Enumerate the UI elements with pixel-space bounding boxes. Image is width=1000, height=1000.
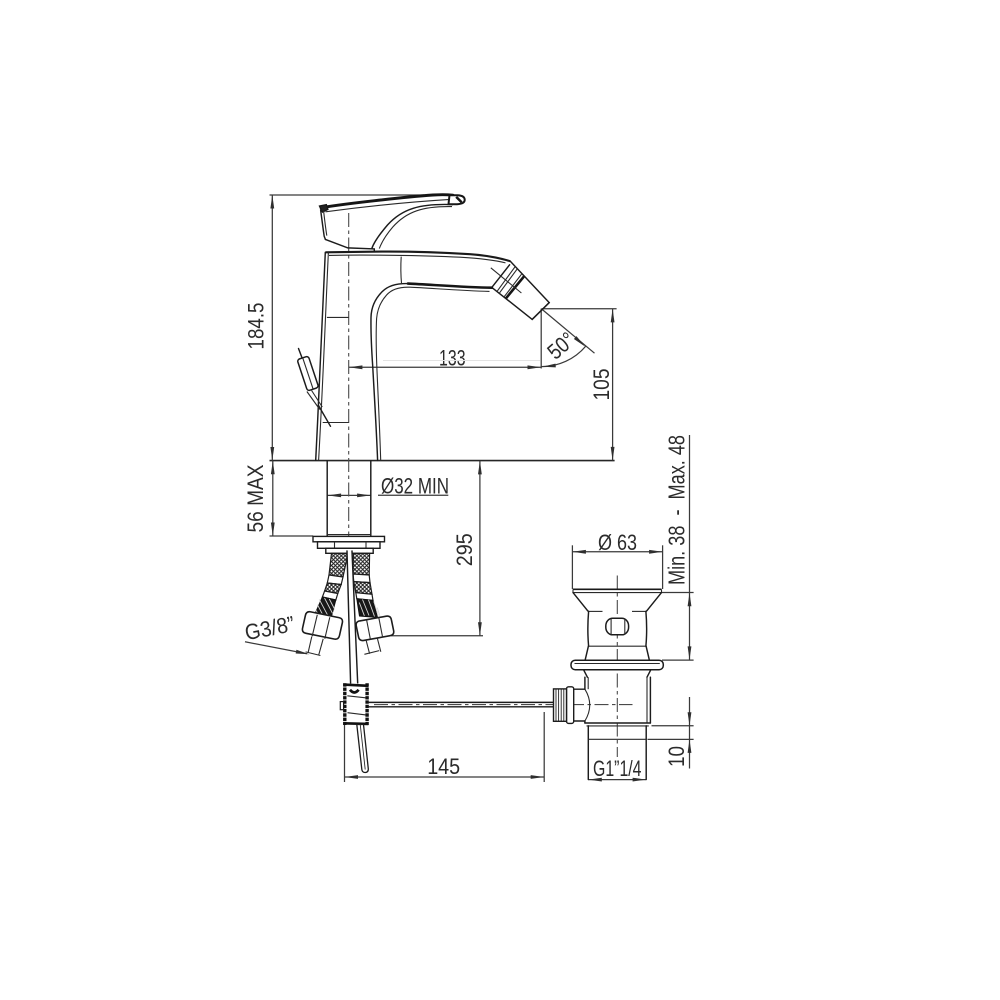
svg-text:Ø 63: Ø 63 [598,530,637,555]
svg-text:Min. 38 - Max. 48: Min. 38 - Max. 48 [664,435,690,585]
svg-text:184.5: 184.5 [244,303,269,350]
svg-text:56 MAX: 56 MAX [243,464,268,532]
svg-text:145: 145 [427,754,460,779]
svg-text:133: 133 [439,345,466,370]
svg-text:295: 295 [452,533,477,566]
svg-text:G1”1/4: G1”1/4 [593,756,642,781]
svg-text:10: 10 [664,746,689,767]
svg-text:105: 105 [589,369,614,401]
